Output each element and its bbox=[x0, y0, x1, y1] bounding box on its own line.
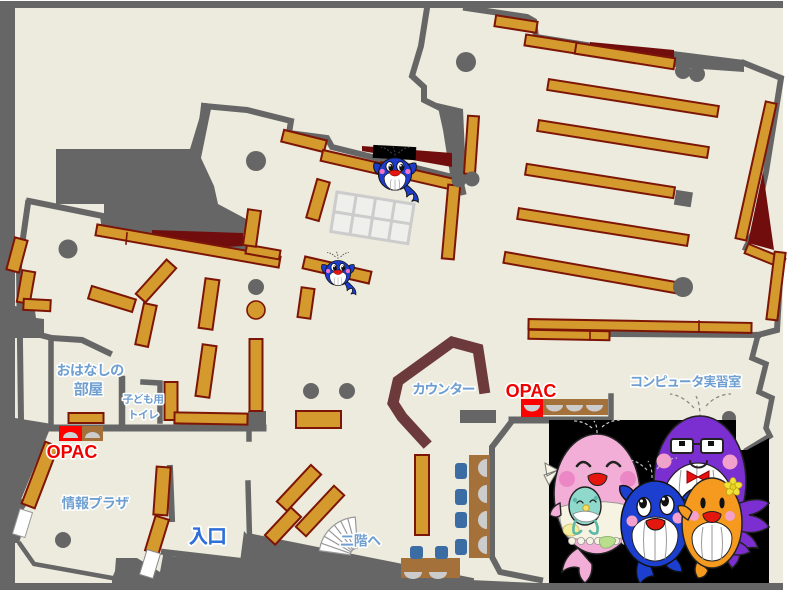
svg-text:OPAC: OPAC bbox=[47, 442, 98, 462]
svg-text:OPAC: OPAC bbox=[506, 381, 557, 401]
